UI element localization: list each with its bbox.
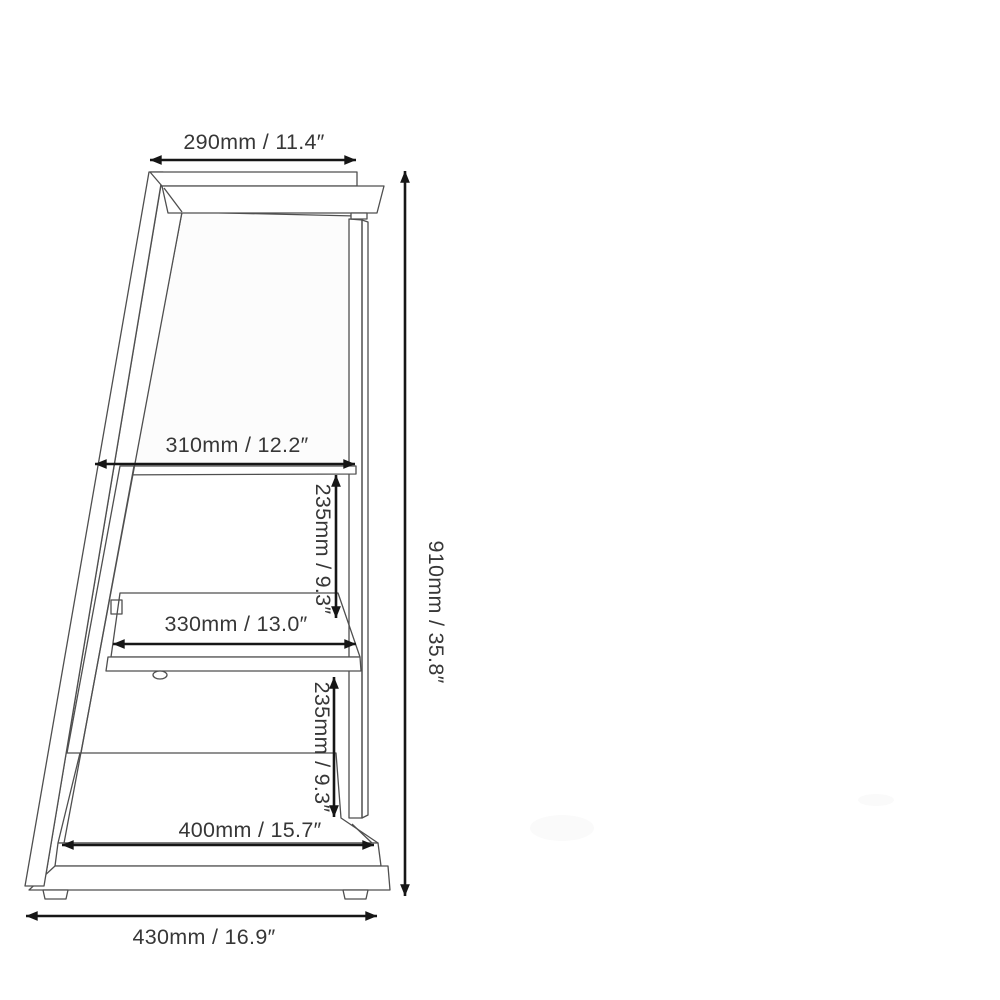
dim-shelf2-width-label: 330mm / 13.0″ <box>165 612 308 636</box>
foot-right-icon <box>343 890 368 899</box>
dim-shelf1-width-label: 310mm / 12.2″ <box>166 433 309 457</box>
dim-top-width: 290mm / 11.4″ <box>150 130 356 160</box>
foot-left-icon <box>43 890 68 899</box>
upper-shelf-edge <box>98 466 356 475</box>
dim-overall-height: 910mm / 35.8″ <box>405 171 448 896</box>
dim-shelf3-width: 400mm / 15.7″ <box>62 818 374 845</box>
dim-base-width: 430mm / 16.9″ <box>26 916 377 949</box>
dim-top-width-label: 290mm / 11.4″ <box>183 130 324 154</box>
dim-upper-gap: 235mm / 9.3″ <box>311 475 336 618</box>
dim-overall-height-label: 910mm / 35.8″ <box>424 541 448 684</box>
top-shelf <box>150 172 384 219</box>
left-leg <box>25 172 163 886</box>
dim-lower-gap-label: 235mm / 9.3″ <box>310 682 334 813</box>
dim-shelf3-width-label: 400mm / 15.7″ <box>179 818 322 842</box>
shelf-bracket-icon <box>111 600 122 614</box>
right-post <box>349 219 368 818</box>
dim-shelf2-width: 330mm / 13.0″ <box>113 612 356 644</box>
top-bracket-icon <box>351 213 367 219</box>
dim-base-width-label: 430mm / 16.9″ <box>133 925 276 949</box>
background-smudges <box>530 794 894 841</box>
left-leg-inner-face <box>44 173 182 886</box>
ladder-shelf-dimension-diagram: 290mm / 11.4″ 910mm / 35.8″ 310mm / 12.2… <box>0 0 1000 1000</box>
dim-lower-gap: 235mm / 9.3″ <box>310 677 334 817</box>
diagram-canvas: 290mm / 11.4″ 910mm / 35.8″ 310mm / 12.2… <box>0 0 1000 1000</box>
dim-upper-gap-label: 235mm / 9.3″ <box>311 484 335 615</box>
